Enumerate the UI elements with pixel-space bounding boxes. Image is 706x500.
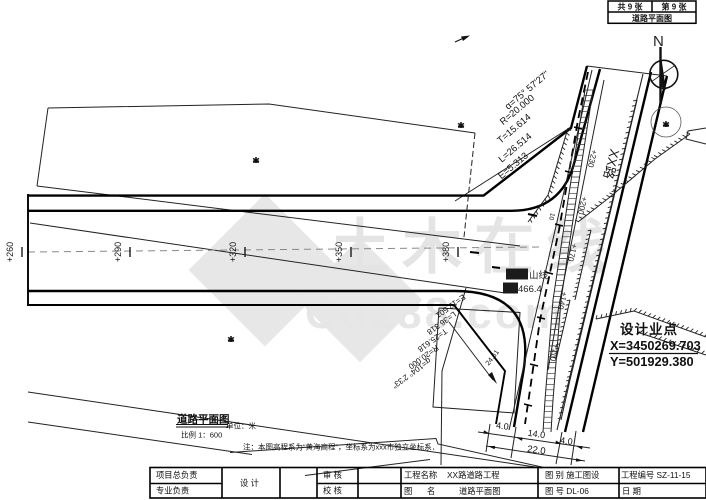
svg-text:比例 1：600: 比例 1：600	[181, 430, 222, 440]
svg-text:图 别 施工图设: 图 别 施工图设	[545, 470, 599, 480]
svg-text:单位：米: 单位：米	[226, 421, 256, 431]
svg-text:466.4: 466.4	[518, 284, 542, 295]
svg-text:+380: +380	[441, 242, 451, 262]
svg-text:图 号 DL-06: 图 号 DL-06	[545, 486, 589, 496]
svg-text:+260: +260	[5, 242, 15, 262]
svg-text:+320: +320	[228, 242, 238, 262]
svg-text:4.0: 4.0	[496, 420, 510, 432]
svg-text:道路平面图: 道路平面图	[632, 13, 672, 23]
svg-text:专业负责: 专业负责	[156, 486, 189, 496]
svg-text:审 核: 审 核	[323, 470, 342, 480]
svg-text:日 期: 日 期	[622, 486, 641, 496]
svg-text:道路平面图: 道路平面图	[177, 413, 230, 426]
svg-text:+350: +350	[334, 242, 344, 262]
svg-text:Y=501929.380: Y=501929.380	[610, 354, 694, 369]
svg-text:名: 名	[427, 486, 435, 496]
svg-text:X=3450269.703: X=3450269.703	[610, 338, 701, 353]
svg-text:设计业点: 设计业点	[620, 321, 678, 337]
svg-text:XX路道路工程: XX路道路工程	[447, 470, 500, 480]
svg-text:工程编号 SZ-11-15: 工程编号 SZ-11-15	[621, 470, 691, 480]
svg-text:+290: +290	[113, 242, 123, 262]
svg-text:图: 图	[404, 486, 412, 496]
svg-text:山线: 山线	[529, 270, 549, 282]
svg-text:校 核: 校 核	[323, 486, 342, 496]
svg-text:项目总负责: 项目总负责	[156, 470, 198, 480]
svg-text:工程名称: 工程名称	[404, 470, 437, 480]
svg-text:共 9 张: 共 9 张	[618, 2, 644, 12]
svg-text:第 9 张: 第 9 张	[662, 2, 688, 12]
svg-text:设 计: 设 计	[240, 478, 259, 488]
svg-text:注：本图高程系为“黄海高程”，坐标系为xxx市独立坐标系．: 注：本图高程系为“黄海高程”，坐标系为xxx市独立坐标系．	[243, 442, 439, 452]
svg-text:道路平面图: 道路平面图	[459, 486, 501, 496]
svg-text:4.0: 4.0	[560, 435, 574, 447]
svg-text:N: N	[653, 33, 664, 50]
